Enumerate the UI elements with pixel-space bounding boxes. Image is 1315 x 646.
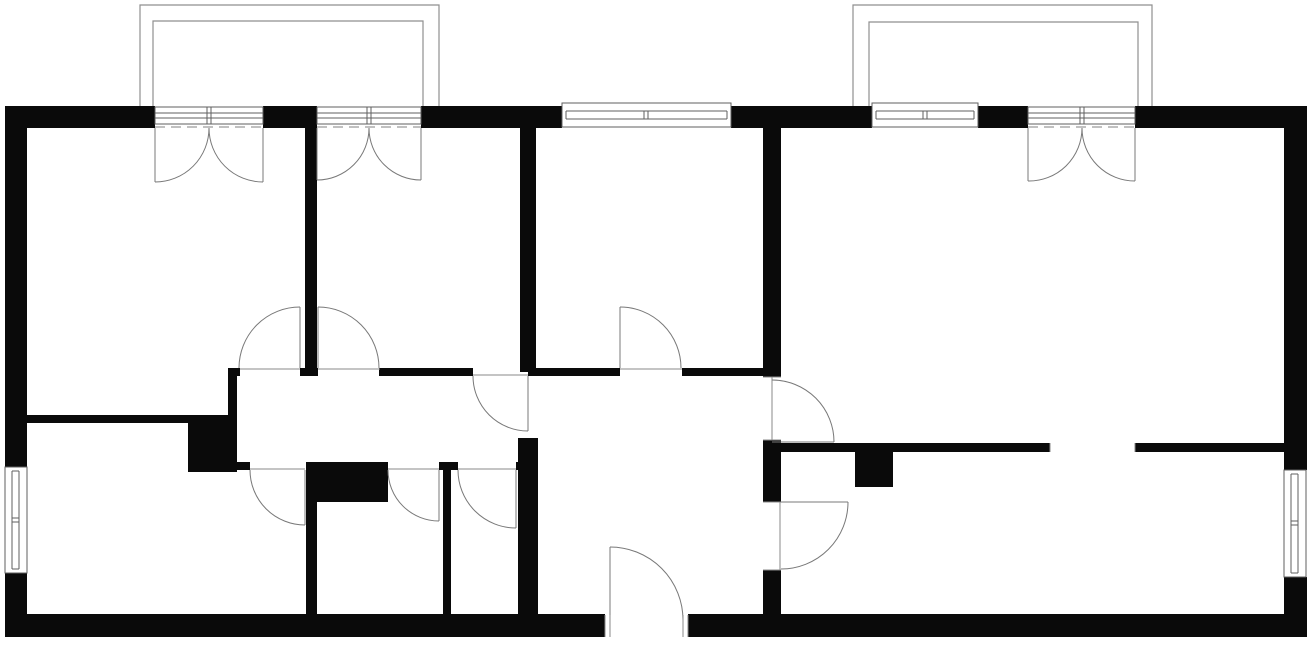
corridor-bottom-wall-a (237, 462, 250, 470)
window-top-room3-frame (562, 103, 731, 127)
corridor-top-wall-d (528, 368, 620, 376)
balcony-door-living-frame (1028, 107, 1135, 124)
wall-hallway-living-low (763, 570, 781, 615)
exterior-top-wall-f (1135, 106, 1307, 128)
plan-background (0, 0, 1315, 646)
exterior-top-wall-e (978, 106, 1028, 128)
living-partition-wall-b (1135, 443, 1284, 452)
balcony-door-room2-frame (317, 107, 421, 124)
corridor-top-wall-e (682, 368, 763, 376)
bottom-left-room-top-wall (27, 415, 188, 423)
window-top-room3 (562, 103, 731, 127)
exterior-top-wall-a (5, 106, 155, 128)
exterior-top-wall-c (421, 106, 562, 128)
divider-room3-living (763, 128, 781, 377)
exterior-top-wall-b (263, 106, 317, 128)
divider-room1-room2 (305, 128, 317, 376)
living-pillar (855, 452, 893, 487)
window-top-living (872, 103, 978, 127)
exterior-left-wall-upper (5, 106, 27, 467)
floor-plan-page (0, 0, 1315, 646)
divider-room2-room3 (520, 128, 536, 372)
window-left-wall (5, 467, 27, 573)
exterior-top-wall-d (731, 106, 872, 128)
floor-plan-canvas (0, 0, 1315, 646)
window-right-wall (1284, 470, 1306, 577)
corridor-left-wall (228, 376, 237, 416)
exterior-bottom-wall-a (5, 614, 605, 637)
exterior-right-wall-upper (1284, 106, 1307, 470)
exterior-bottom-wall-b (688, 614, 1307, 637)
corridor-top-wall-a (228, 368, 240, 376)
step-block (188, 415, 237, 472)
wall-hallway-living-mid (763, 440, 781, 502)
window-right-wall-frame (1284, 470, 1306, 577)
window-left-wall-frame (5, 467, 27, 573)
corridor-top-wall-b (300, 368, 318, 376)
living-partition-wall-a (781, 443, 1050, 452)
wall-bathroom-bottomleftroom (306, 502, 317, 615)
corridor-block (306, 462, 388, 502)
wall-bathroom-wc (443, 462, 451, 615)
corridor-top-wall-c (379, 368, 473, 376)
window-top-living-frame (872, 103, 978, 127)
wall-wc-hallway (518, 438, 538, 615)
balcony-door-room1-frame (155, 107, 263, 124)
